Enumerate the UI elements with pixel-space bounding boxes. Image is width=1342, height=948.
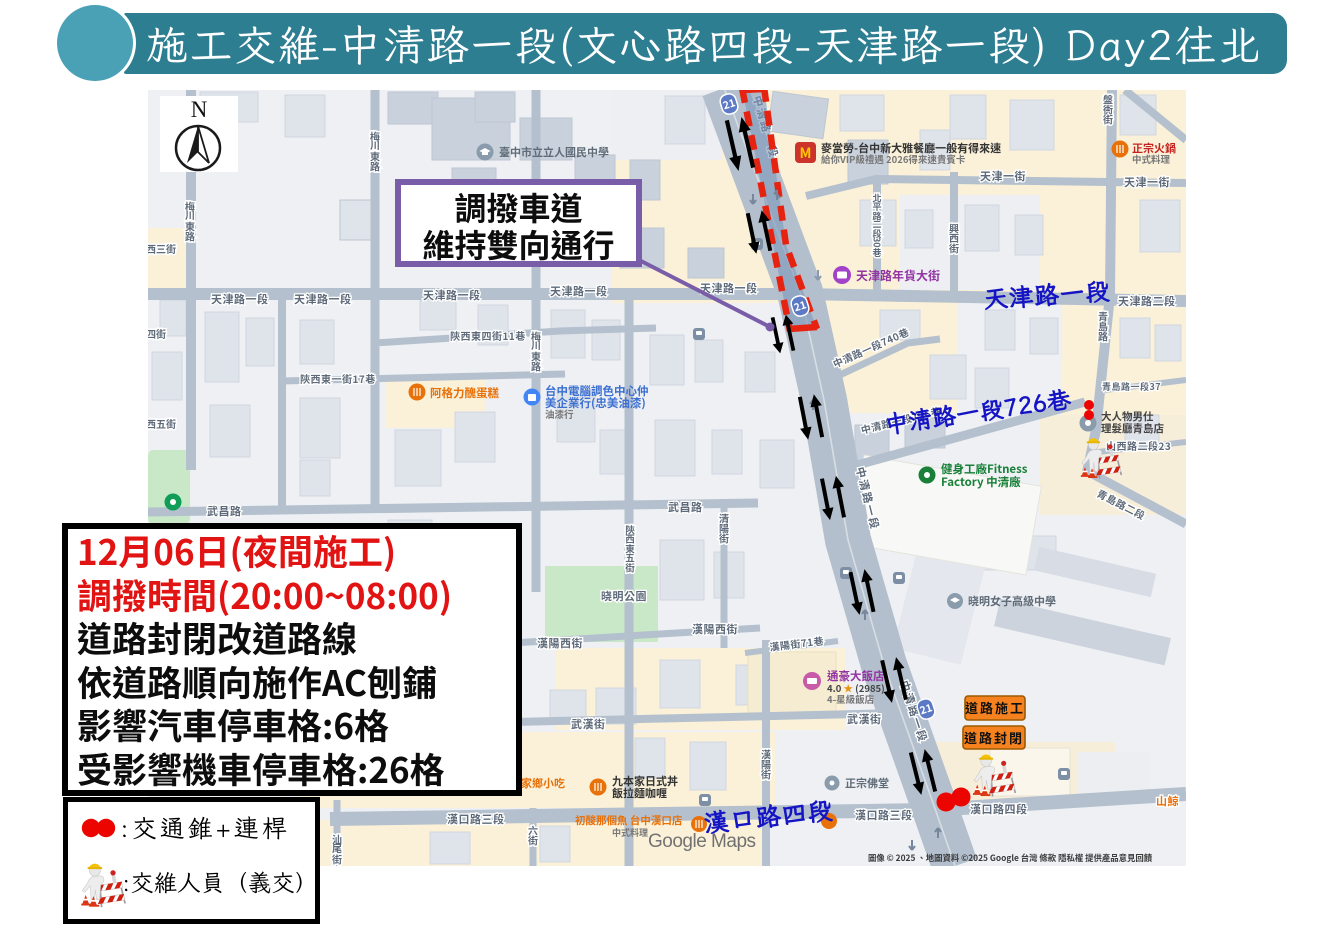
svg-text:漢陽西街: 漢陽西街	[692, 621, 738, 637]
svg-text:N: N	[191, 97, 208, 122]
svg-text:梅川東路: 梅川東路	[368, 130, 383, 172]
svg-text:漢陽街: 漢陽街	[759, 748, 774, 780]
svg-text:西三街: 西三街	[148, 241, 176, 256]
svg-text:道路施工: 道路施工	[965, 698, 1025, 717]
svg-text:飯拉麵咖喱: 飯拉麵咖喱	[612, 785, 667, 801]
svg-text:盤衖街: 盤衖街	[1101, 93, 1116, 125]
svg-text:興西街: 興西街	[947, 222, 962, 254]
svg-text:梅川東路: 梅川東路	[183, 200, 198, 242]
svg-text:漢陽西街: 漢陽西街	[537, 635, 583, 651]
svg-text:Google Maps: Google Maps	[648, 831, 756, 852]
svg-text:油漆行: 油漆行	[545, 407, 574, 421]
svg-text:北平路二段30巷: 北平路二段30巷	[871, 192, 884, 257]
svg-text:漢口路三段: 漢口路三段	[855, 807, 913, 823]
svg-text:阿格力醜蛋糕: 阿格力醜蛋糕	[430, 385, 499, 401]
svg-text:武昌路: 武昌路	[668, 499, 703, 515]
svg-text:六街: 六街	[526, 824, 541, 846]
svg-text:漢口路三段: 漢口路三段	[447, 811, 505, 827]
svg-text:陝西東五街: 陝西東五街	[623, 524, 637, 573]
svg-text:汕尾街: 汕尾街	[330, 833, 345, 865]
svg-text:武漢街: 武漢街	[847, 711, 882, 727]
svg-text:圖像 © 2025 、地圖資料 ©2025 Google: 圖像 © 2025 、地圖資料 ©2025 Google 台灣 條款 隱私權 提…	[868, 852, 1153, 864]
svg-text:Factory 中清廠: Factory 中清廠	[941, 474, 1021, 490]
svg-text:山西路二段23: 山西路二段23	[1106, 438, 1171, 453]
svg-text:陝西東一街17巷: 陝西東一街17巷	[300, 371, 376, 386]
svg-text:天津路一段: 天津路一段	[550, 283, 608, 299]
svg-text:M: M	[800, 143, 812, 163]
svg-text:武昌路: 武昌路	[207, 503, 242, 519]
svg-text:武漢街: 武漢街	[571, 716, 606, 732]
svg-text:晓明公園: 晓明公園	[601, 588, 647, 604]
svg-text:天津路年貨大街: 天津路年貨大街	[856, 267, 940, 284]
svg-text:天津路一段: 天津路一段	[211, 291, 269, 307]
svg-text:正宗佛堂: 正宗佛堂	[845, 775, 889, 791]
svg-text:天津路二段: 天津路二段	[1118, 293, 1176, 309]
svg-text:中式料理: 中式料理	[612, 826, 648, 839]
svg-text:臺中市立立人國民中學: 臺中市立立人國民中學	[499, 144, 609, 160]
svg-text:中式料理: 中式料理	[1132, 152, 1171, 166]
svg-text:青島路: 青島路	[1096, 310, 1111, 342]
svg-text:天津路一段: 天津路一段	[423, 287, 481, 303]
svg-text:天津一街: 天津一街	[980, 168, 1026, 184]
svg-text:給你VIP級禮遇 2026得來速貴賓卡: 給你VIP級禮遇 2026得來速貴賓卡	[821, 152, 966, 166]
svg-text:家鄉小吃: 家鄉小吃	[521, 775, 565, 791]
svg-text:漢口路四段: 漢口路四段	[970, 801, 1028, 817]
svg-text:4-星級飯店: 4-星級飯店	[827, 692, 875, 706]
svg-text:青島路一段37: 青島路一段37	[1102, 380, 1161, 393]
svg-text:西五街: 西五街	[148, 416, 176, 431]
svg-text:晓明女子高級中學: 晓明女子高級中學	[968, 593, 1056, 609]
svg-text:清陽街: 清陽街	[717, 512, 732, 544]
svg-text:陝西東四街11巷: 陝西東四街11巷	[450, 328, 526, 343]
svg-text:理髮廳青島店: 理髮廳青島店	[1101, 421, 1164, 436]
svg-text:四街: 四街	[148, 326, 166, 341]
svg-text:天津路一段: 天津路一段	[294, 291, 352, 307]
svg-text:道路封閉: 道路封閉	[964, 728, 1024, 747]
svg-text:山鯨: 山鯨	[1156, 793, 1179, 809]
svg-text:天津一街: 天津一街	[1124, 174, 1170, 190]
svg-text:梅川東路: 梅川東路	[529, 330, 544, 372]
